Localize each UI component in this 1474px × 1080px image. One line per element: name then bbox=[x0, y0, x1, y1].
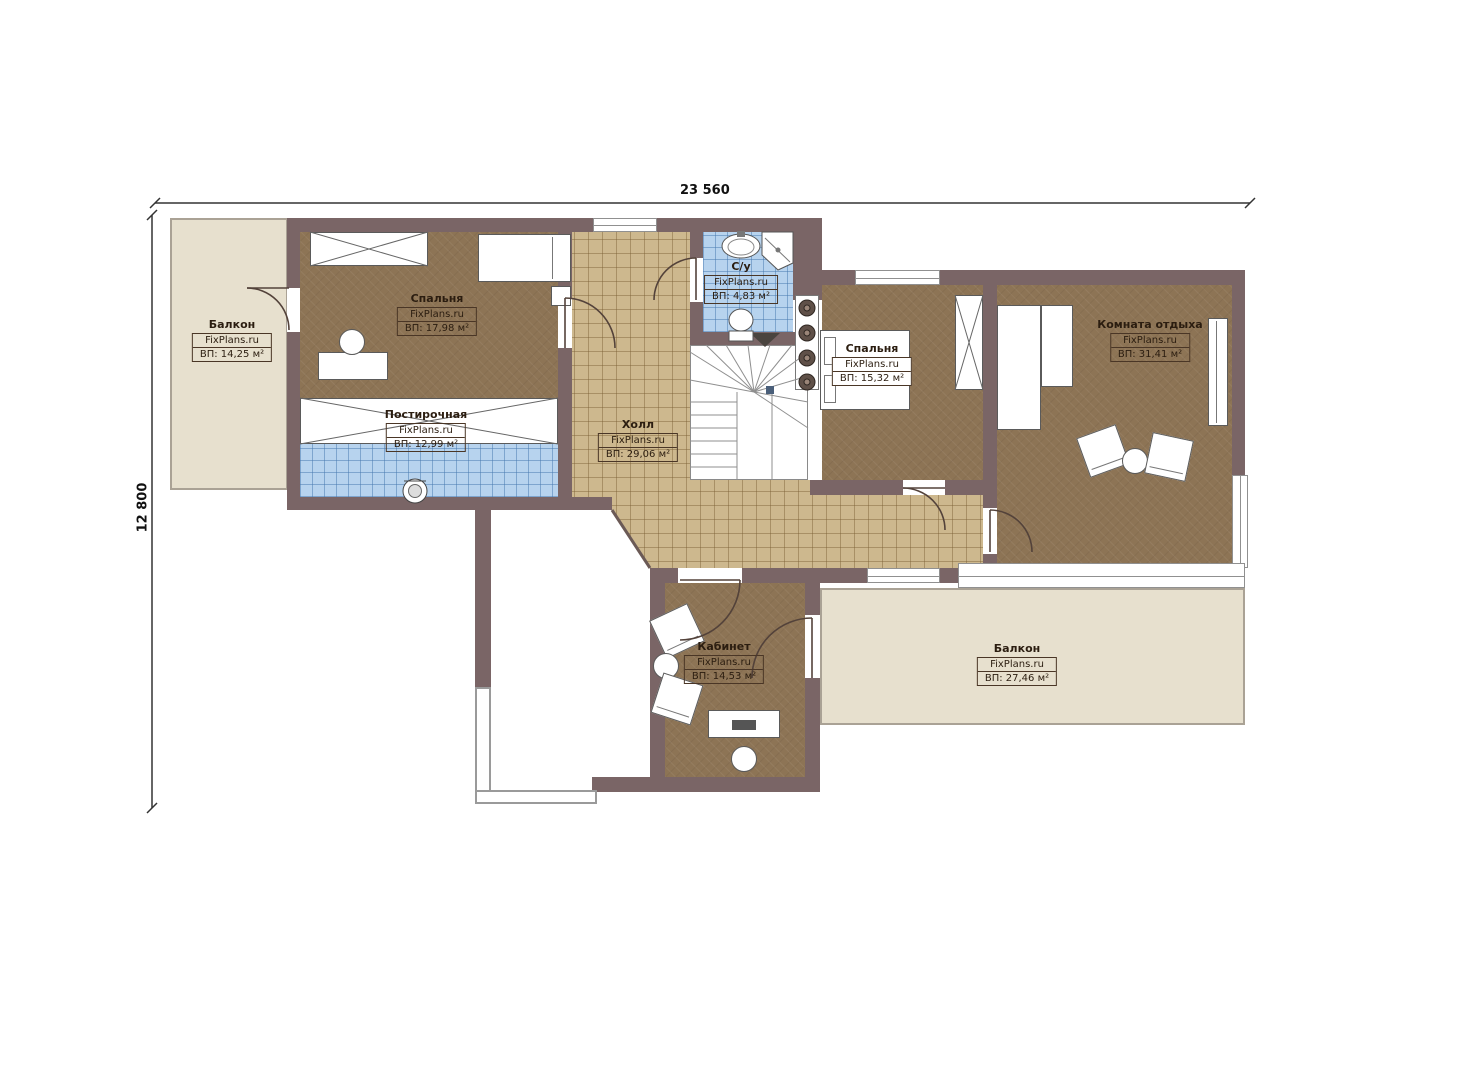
wall bbox=[1232, 270, 1245, 480]
wall bbox=[475, 497, 491, 687]
hall-floor bbox=[0, 0, 1474, 1080]
room-label-bathroom: С/у FixPlans.ru ВП: 4,83 м² bbox=[704, 260, 778, 304]
room-area: ВП: 15,32 м² bbox=[833, 372, 911, 385]
wall bbox=[592, 777, 820, 792]
watermark: FixPlans.ru bbox=[1111, 334, 1189, 348]
room-label-lounge: Комната отдыха FixPlans.ru ВП: 31,41 м² bbox=[1097, 318, 1202, 362]
wall bbox=[690, 332, 808, 345]
room-name: Кабинет bbox=[684, 640, 764, 653]
wall bbox=[793, 218, 822, 300]
room-area: ВП: 12,99 м² bbox=[387, 438, 465, 451]
floor-plan: 23 560 12 800 Балкон FixPlans.ru ВП: 14,… bbox=[0, 0, 1474, 1080]
door-opening bbox=[287, 288, 300, 332]
tv-unit bbox=[1208, 318, 1228, 426]
room-name: Балкон bbox=[192, 318, 272, 331]
dimension-height: 12 800 bbox=[135, 483, 150, 533]
desk bbox=[318, 352, 388, 380]
window bbox=[593, 218, 657, 232]
parapet bbox=[475, 687, 491, 797]
room-label-office: Кабинет FixPlans.ru ВП: 14,53 м² bbox=[684, 640, 764, 684]
sofa bbox=[997, 305, 1041, 430]
room-name: Балкон bbox=[977, 642, 1057, 655]
room-area: ВП: 4,83 м² bbox=[705, 290, 777, 303]
watermark: FixPlans.ru bbox=[978, 658, 1056, 672]
room-name: Спальня bbox=[397, 292, 477, 305]
window bbox=[1232, 475, 1248, 568]
watermark: FixPlans.ru bbox=[833, 358, 911, 372]
watermark: FixPlans.ru bbox=[398, 308, 476, 322]
room-label-balcony-left: Балкон FixPlans.ru ВП: 14,25 м² bbox=[192, 318, 272, 362]
room-area: ВП: 29,06 м² bbox=[599, 448, 677, 461]
room-area: ВП: 27,46 м² bbox=[978, 672, 1056, 685]
wall bbox=[810, 480, 983, 495]
room-name: С/у bbox=[704, 260, 778, 273]
door-opening bbox=[903, 480, 945, 495]
door-opening bbox=[690, 258, 703, 302]
wall bbox=[805, 568, 820, 790]
wall bbox=[940, 568, 958, 583]
watermark: FixPlans.ru bbox=[599, 434, 677, 448]
room-name: Постирочная bbox=[385, 408, 467, 421]
room-label-hall: Холл FixPlans.ru ВП: 29,06 м² bbox=[598, 418, 678, 462]
room-area: ВП: 14,53 м² bbox=[685, 670, 763, 683]
wall bbox=[287, 218, 300, 510]
watermark: FixPlans.ru bbox=[705, 276, 777, 290]
wardrobe bbox=[310, 232, 428, 266]
room-name: Холл bbox=[598, 418, 678, 431]
room-area: ВП: 14,25 м² bbox=[193, 348, 271, 361]
room-label-laundry: Постирочная FixPlans.ru ВП: 12,99 м² bbox=[385, 408, 467, 452]
office-chair bbox=[731, 746, 757, 772]
dimension-width: 23 560 bbox=[680, 183, 730, 198]
door-opening bbox=[678, 568, 742, 583]
bed bbox=[478, 234, 571, 282]
room-label-bedroom-1: Спальня FixPlans.ru ВП: 17,98 м² bbox=[397, 292, 477, 336]
room-name: Спальня bbox=[832, 342, 912, 355]
window bbox=[855, 270, 940, 285]
window bbox=[958, 563, 1245, 588]
laptop bbox=[732, 720, 756, 730]
window bbox=[867, 568, 940, 583]
watermark: FixPlans.ru bbox=[387, 424, 465, 438]
watermark: FixPlans.ru bbox=[193, 334, 271, 348]
room-name: Комната отдыха bbox=[1097, 318, 1202, 331]
door-opening bbox=[983, 508, 997, 554]
watermark: FixPlans.ru bbox=[685, 656, 763, 670]
room-area: ВП: 17,98 м² bbox=[398, 322, 476, 335]
room-label-bedroom-2: Спальня FixPlans.ru ВП: 15,32 м² bbox=[832, 342, 912, 386]
nightstand bbox=[551, 286, 571, 306]
stool bbox=[339, 329, 365, 355]
wall bbox=[287, 218, 810, 232]
sofa-chaise bbox=[1041, 305, 1073, 387]
wall bbox=[820, 568, 867, 583]
room-label-balcony-bottom: Балкон FixPlans.ru ВП: 27,46 м² bbox=[977, 642, 1057, 686]
vent-shaft bbox=[795, 295, 819, 390]
wardrobe bbox=[955, 295, 983, 390]
door-opening bbox=[805, 615, 820, 678]
armchair bbox=[1144, 432, 1194, 482]
parapet bbox=[475, 790, 597, 804]
stairs bbox=[690, 345, 808, 480]
room-area: ВП: 31,41 м² bbox=[1111, 348, 1189, 361]
